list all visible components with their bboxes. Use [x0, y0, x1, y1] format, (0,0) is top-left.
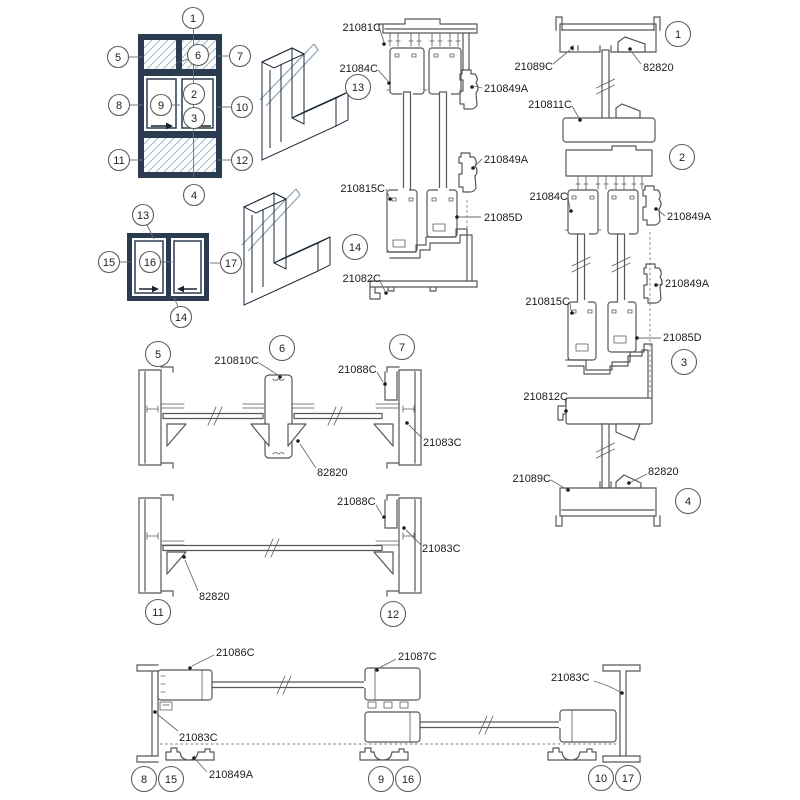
svg-text:6: 6	[195, 50, 201, 62]
svg-text:15: 15	[103, 257, 115, 269]
part-label: 21081C	[342, 22, 381, 34]
callout-7-section: 7	[390, 335, 415, 360]
callout-15-section: 15	[159, 767, 184, 792]
svg-text:11: 11	[152, 607, 163, 619]
part-label: 21083C	[423, 437, 462, 449]
callout-4: 4	[184, 185, 205, 206]
svg-text:10: 10	[236, 102, 248, 114]
svg-text:7: 7	[237, 51, 243, 63]
part-label: 21087C	[398, 651, 437, 663]
part-label: 210849A	[665, 278, 710, 290]
svg-text:17: 17	[622, 773, 634, 785]
callout-8: 8	[109, 95, 130, 116]
bottom-horizontal-section-drawing: 21086C 21087C 21083C 210849A 21083C	[137, 647, 640, 781]
svg-text:12: 12	[236, 155, 248, 167]
part-label: 210815C	[525, 296, 570, 308]
callout-6: 6	[188, 45, 209, 66]
callout-3-section: 3	[672, 350, 697, 375]
svg-text:9: 9	[378, 774, 384, 786]
part-label: 82820	[317, 467, 348, 479]
callout-14: 14	[171, 307, 192, 328]
full-vertical-section-drawing: 21089C 82820 210811C 21084C 210849A 2108…	[512, 17, 711, 526]
part-label: 210849A	[484, 83, 529, 95]
callout-17-section: 17	[616, 766, 641, 791]
svg-text:2: 2	[191, 89, 197, 101]
svg-text:5: 5	[115, 52, 121, 64]
callout-12: 12	[232, 150, 253, 171]
sash-right-frame	[174, 241, 201, 293]
svg-text:16: 16	[402, 774, 414, 786]
head-sill-section-drawing: 21081C 21084C 210849A 210849A 210815C 21…	[339, 19, 528, 299]
callout-2: 2	[184, 84, 205, 105]
part-label: 21089C	[514, 61, 553, 73]
part-label: 21088C	[337, 496, 376, 508]
part-label: 210849A	[667, 211, 712, 223]
part-label: 210815C	[340, 183, 385, 195]
fixed-glass-top-left	[144, 40, 176, 69]
elevation-two-panel-window	[120, 225, 220, 307]
part-label: 21083C	[179, 732, 218, 744]
svg-text:2: 2	[679, 152, 685, 164]
elevation-main-window	[129, 28, 231, 178]
svg-text:9: 9	[158, 100, 164, 112]
callout-13: 13	[133, 205, 154, 226]
svg-text:4: 4	[191, 190, 197, 202]
svg-text:14: 14	[349, 242, 361, 254]
callout-15: 15	[99, 252, 120, 273]
callout-10: 10	[232, 97, 253, 118]
svg-text:12: 12	[387, 609, 399, 621]
part-label: 21086C	[216, 647, 255, 659]
svg-text:13: 13	[137, 210, 149, 222]
callout-11-section: 11	[146, 600, 171, 625]
top-horizontal-section-drawing: 210810C 21088C 21083C 82820	[139, 355, 462, 479]
svg-text:11: 11	[113, 155, 124, 167]
svg-text:3: 3	[191, 113, 197, 125]
callout-1: 1	[183, 8, 204, 29]
svg-text:3: 3	[681, 357, 687, 369]
part-label: 210811C	[528, 99, 572, 111]
svg-text:1: 1	[675, 29, 681, 41]
part-label: 82820	[643, 62, 674, 74]
callout-9: 9	[151, 95, 172, 116]
svg-text:1: 1	[190, 13, 196, 25]
svg-text:14: 14	[175, 312, 187, 324]
mid-horizontal-section-drawing: 21088C 21083C 82820	[139, 495, 461, 603]
callout-2-section: 2	[670, 145, 695, 170]
part-label: 21083C	[422, 543, 461, 555]
callout-12-section: 12	[381, 602, 406, 627]
part-label: 210849A	[484, 154, 529, 166]
callout-17: 17	[221, 253, 242, 274]
svg-text:16: 16	[144, 257, 156, 269]
callout-14-section: 14	[343, 235, 368, 260]
callout-16: 16	[140, 252, 161, 273]
callout-5-section: 5	[146, 342, 171, 367]
svg-text:7: 7	[399, 342, 405, 354]
part-label: 21084C	[529, 191, 568, 203]
corner-sample-render-upper	[260, 44, 348, 160]
svg-text:5: 5	[155, 349, 161, 361]
callout-8-section: 8	[132, 767, 157, 792]
diagram-canvas: 21081C 21084C 210849A 210849A 210815C 21…	[0, 0, 800, 800]
callout-3: 3	[184, 108, 205, 129]
callout-9-section: 9	[369, 767, 394, 792]
svg-text:13: 13	[352, 82, 364, 94]
svg-text:8: 8	[141, 774, 147, 786]
callout-7: 7	[230, 46, 251, 67]
part-label: 82820	[648, 466, 679, 478]
callout-16-section: 16	[396, 767, 421, 792]
callout-11: 11	[109, 150, 130, 171]
part-label: 21085D	[663, 332, 702, 344]
svg-text:10: 10	[595, 773, 607, 785]
window-system-diagram: 21081C 21084C 210849A 210849A 210815C 21…	[0, 0, 800, 800]
fixed-glass-bottom	[144, 138, 216, 172]
callout-4-section: 4	[676, 489, 701, 514]
callout-10-section: 10	[589, 766, 614, 791]
svg-text:4: 4	[685, 496, 691, 508]
part-label: 210812C	[523, 391, 568, 403]
part-label: 21084C	[339, 63, 378, 75]
part-label: 21082C	[342, 273, 381, 285]
part-label: 82820	[199, 591, 230, 603]
part-label: 210810C	[214, 355, 259, 367]
part-label: 21083C	[551, 672, 590, 684]
svg-text:6: 6	[279, 343, 285, 355]
svg-text:15: 15	[165, 774, 177, 786]
svg-text:8: 8	[116, 100, 122, 112]
callout-13-section: 13	[346, 75, 371, 100]
callout-6-section: 6	[270, 336, 295, 361]
part-label: 210849A	[209, 769, 254, 781]
part-label: 21085D	[484, 212, 523, 224]
part-label: 21089C	[512, 473, 551, 485]
corner-sample-render-lower	[242, 189, 330, 305]
part-label: 21088C	[338, 364, 377, 376]
callout-1-section: 1	[666, 22, 691, 47]
svg-text:17: 17	[225, 258, 237, 270]
callout-5: 5	[108, 47, 129, 68]
